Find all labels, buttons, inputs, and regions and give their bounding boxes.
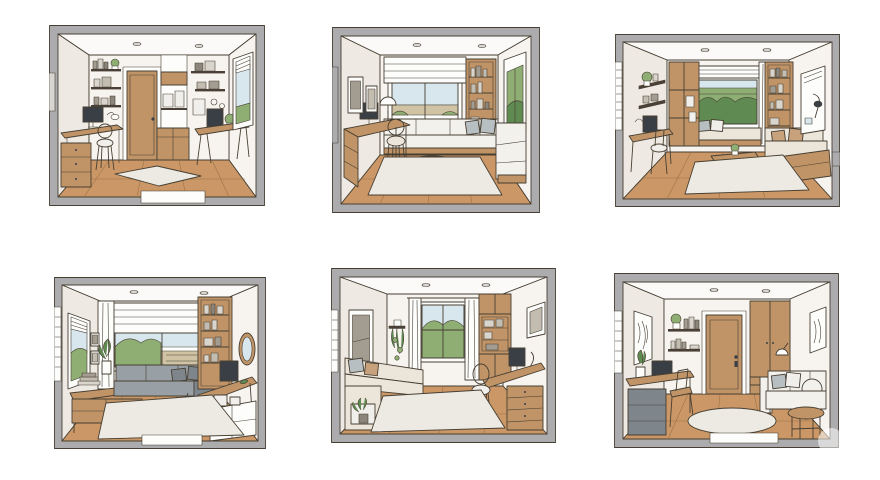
corner-window <box>233 52 253 130</box>
oval-rug <box>688 408 776 434</box>
room-illustration-2[interactable] <box>332 27 540 213</box>
pinboard <box>193 99 205 115</box>
room-illustration-1[interactable] <box>49 25 265 206</box>
side-wall-window <box>801 66 825 134</box>
doormat <box>141 191 205 203</box>
back-window <box>384 57 466 123</box>
monitor <box>83 107 103 122</box>
rug <box>368 157 502 195</box>
exterior-shutter <box>615 62 622 130</box>
wall-art <box>349 310 373 366</box>
rug <box>371 390 505 432</box>
exterior-wall-tab <box>332 67 338 143</box>
illustration-grid <box>0 0 880 480</box>
monitor <box>643 116 657 132</box>
corner-highlight <box>818 428 844 454</box>
roman-shade <box>384 57 466 83</box>
oval-mirror <box>239 333 255 365</box>
exterior-shutter <box>54 307 61 381</box>
monitor <box>207 109 223 127</box>
door-lock <box>735 361 738 367</box>
exterior-shutter <box>49 73 55 111</box>
right-wall-art <box>527 302 545 338</box>
monitor <box>220 361 238 381</box>
room-illustration-4[interactable] <box>54 277 266 449</box>
doormat <box>710 433 778 443</box>
door <box>702 311 746 394</box>
exterior-shutter <box>614 311 622 373</box>
tall-cabinet <box>479 294 511 380</box>
doormat <box>142 435 202 445</box>
wardrobe <box>669 62 699 146</box>
monitor <box>509 348 525 366</box>
dark-drawer-unit <box>628 389 666 435</box>
wall-art-right <box>810 307 826 353</box>
plant-icon <box>642 72 652 82</box>
exterior-shutter <box>331 310 338 372</box>
wall-column-shelves <box>157 55 189 160</box>
door-knob <box>151 117 154 120</box>
plant-icon <box>671 314 681 324</box>
door <box>123 67 161 160</box>
room-illustration-3[interactable] <box>615 34 840 207</box>
room-illustration-5[interactable] <box>331 268 556 443</box>
door-knob <box>734 355 737 358</box>
wall-notch <box>832 152 840 166</box>
room-illustration-6[interactable] <box>614 273 839 448</box>
desk-lamp <box>111 114 119 119</box>
